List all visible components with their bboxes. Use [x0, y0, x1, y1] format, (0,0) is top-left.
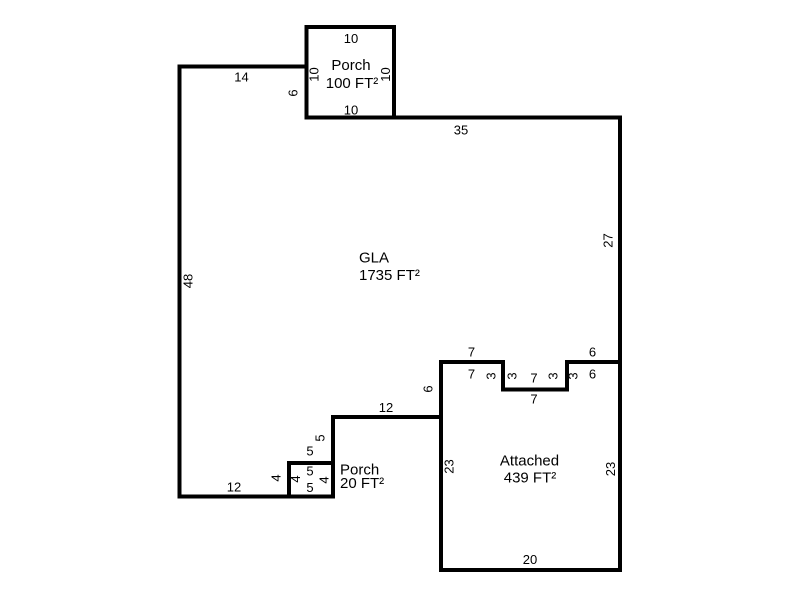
svg-text:10: 10 — [378, 67, 393, 81]
svg-text:23: 23 — [442, 459, 457, 473]
svg-text:6: 6 — [589, 345, 596, 360]
svg-text:4: 4 — [288, 475, 303, 482]
svg-text:7: 7 — [530, 392, 537, 407]
svg-text:6: 6 — [286, 89, 301, 96]
svg-text:6: 6 — [589, 367, 596, 382]
svg-text:7: 7 — [530, 371, 537, 386]
svg-text:20 FT²: 20 FT² — [340, 475, 384, 492]
svg-text:4: 4 — [269, 474, 284, 481]
svg-text:10: 10 — [307, 67, 322, 81]
svg-text:Attached: Attached — [500, 453, 559, 470]
svg-text:20: 20 — [523, 552, 537, 567]
svg-text:6: 6 — [421, 385, 436, 392]
svg-text:7: 7 — [468, 345, 475, 360]
svg-text:3: 3 — [505, 372, 520, 379]
svg-text:3: 3 — [546, 372, 561, 379]
svg-text:10: 10 — [344, 31, 358, 46]
svg-text:12: 12 — [379, 400, 393, 415]
svg-text:439 FT²: 439 FT² — [504, 470, 557, 487]
svg-text:27: 27 — [601, 233, 616, 247]
svg-text:5: 5 — [313, 434, 328, 441]
svg-text:3: 3 — [484, 372, 499, 379]
svg-text:35: 35 — [454, 123, 468, 138]
svg-text:GLA: GLA — [359, 250, 389, 267]
svg-text:48: 48 — [181, 274, 196, 288]
svg-text:10: 10 — [344, 103, 358, 118]
svg-text:100 FT²: 100 FT² — [326, 75, 379, 92]
svg-text:5: 5 — [306, 480, 313, 495]
svg-text:5: 5 — [306, 444, 313, 459]
svg-text:3: 3 — [566, 372, 581, 379]
svg-text:7: 7 — [468, 367, 475, 382]
svg-text:5: 5 — [306, 464, 313, 479]
svg-text:23: 23 — [603, 462, 618, 476]
svg-text:12: 12 — [227, 480, 241, 495]
svg-text:4: 4 — [317, 476, 332, 483]
svg-text:Porch: Porch — [331, 57, 370, 74]
svg-text:1735 FT²: 1735 FT² — [359, 267, 420, 284]
svg-text:14: 14 — [234, 70, 248, 85]
